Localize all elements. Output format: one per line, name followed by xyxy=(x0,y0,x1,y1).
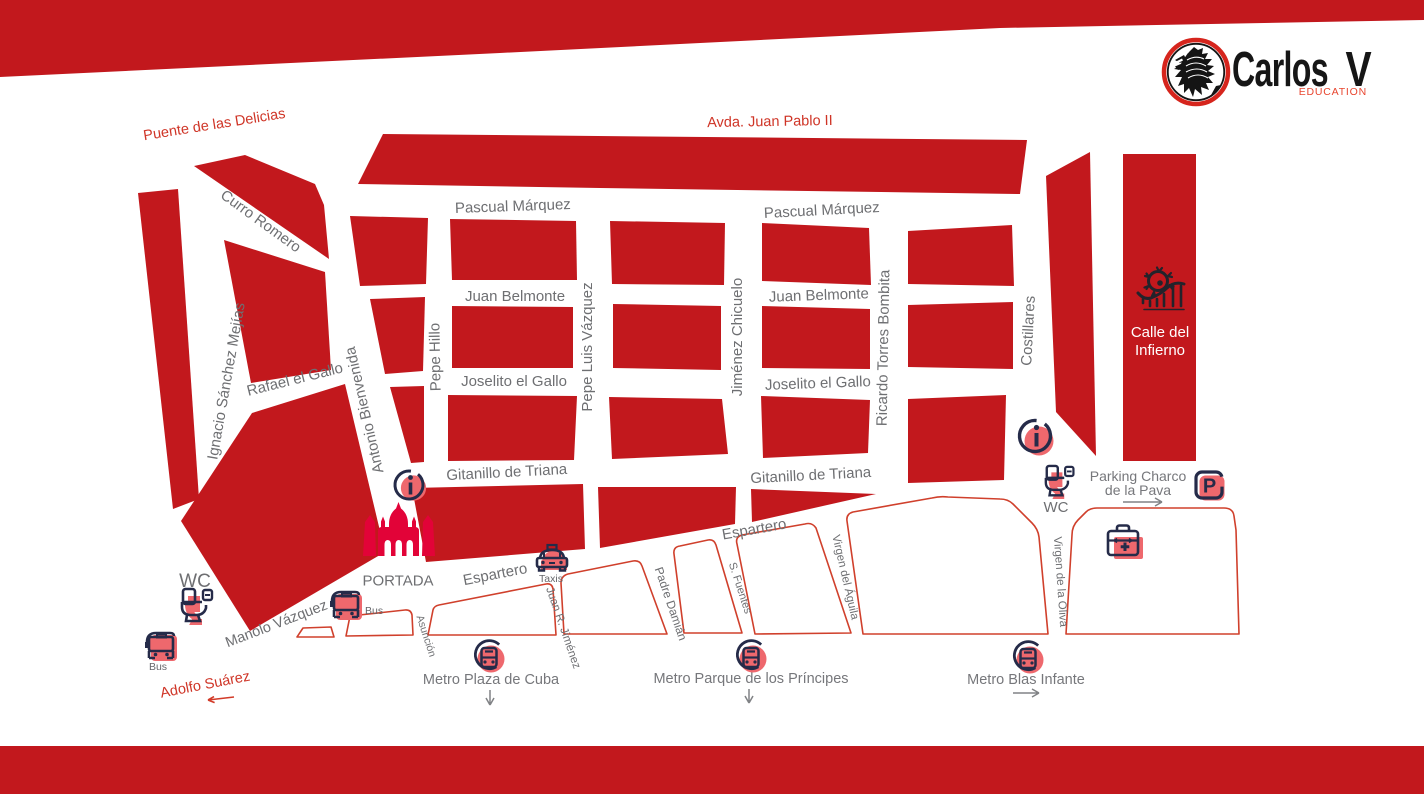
svg-text:Virgen de la Oliva: Virgen de la Oliva xyxy=(1051,536,1069,628)
svg-text:Puente de las Delicias: Puente de las Delicias xyxy=(142,106,286,144)
svg-text:EDUCATION: EDUCATION xyxy=(1299,86,1367,98)
svg-text:Gitanillo de Triana: Gitanillo de Triana xyxy=(446,461,568,484)
svg-text:Metro Blas Infante: Metro Blas Infante xyxy=(967,672,1085,688)
svg-text:Adolfo Suárez: Adolfo Suárez xyxy=(159,669,251,702)
svg-text:Espartero: Espartero xyxy=(462,560,529,589)
svg-text:Ricardo Torres Bombita: Ricardo Torres Bombita xyxy=(874,269,894,426)
svg-text:de la Pava: de la Pava xyxy=(1105,482,1171,498)
svg-text:Metro Plaza de Cuba: Metro Plaza de Cuba xyxy=(423,672,560,688)
svg-text:WC: WC xyxy=(1044,499,1069,516)
svg-text:Jiménez Chicuelo: Jiménez Chicuelo xyxy=(729,278,746,396)
svg-text:Calle del: Calle del xyxy=(1131,324,1189,341)
svg-text:P: P xyxy=(1203,476,1216,498)
svg-text:Infierno: Infierno xyxy=(1135,342,1185,359)
svg-text:PORTADA: PORTADA xyxy=(362,573,433,590)
svg-text:Joselito el Gallo: Joselito el Gallo xyxy=(765,373,871,394)
svg-text:Pascual Márquez: Pascual Márquez xyxy=(763,199,880,222)
svg-text:Costillares: Costillares xyxy=(1018,295,1039,366)
svg-text:Taxis: Taxis xyxy=(539,573,563,585)
svg-text:Metro Parque de los Príncipes: Metro Parque de los Príncipes xyxy=(653,671,848,687)
svg-text:Bus: Bus xyxy=(365,605,383,617)
svg-text:Juan Belmonte: Juan Belmonte xyxy=(769,285,870,305)
svg-text:Pepe Hillo: Pepe Hillo xyxy=(426,323,444,392)
svg-text:Joselito el Gallo: Joselito el Gallo xyxy=(461,373,567,390)
svg-text:Juan Belmonte: Juan Belmonte xyxy=(465,288,565,305)
svg-text:Bus: Bus xyxy=(149,661,167,673)
svg-text:Gitanillo de Triana: Gitanillo de Triana xyxy=(750,464,872,487)
svg-text:Avda. Juan Pablo II: Avda. Juan Pablo II xyxy=(707,113,833,131)
svg-text:Pascual Márquez: Pascual Márquez xyxy=(455,196,571,217)
svg-text:Pepe Luis Vázquez: Pepe Luis Vázquez xyxy=(579,282,596,411)
